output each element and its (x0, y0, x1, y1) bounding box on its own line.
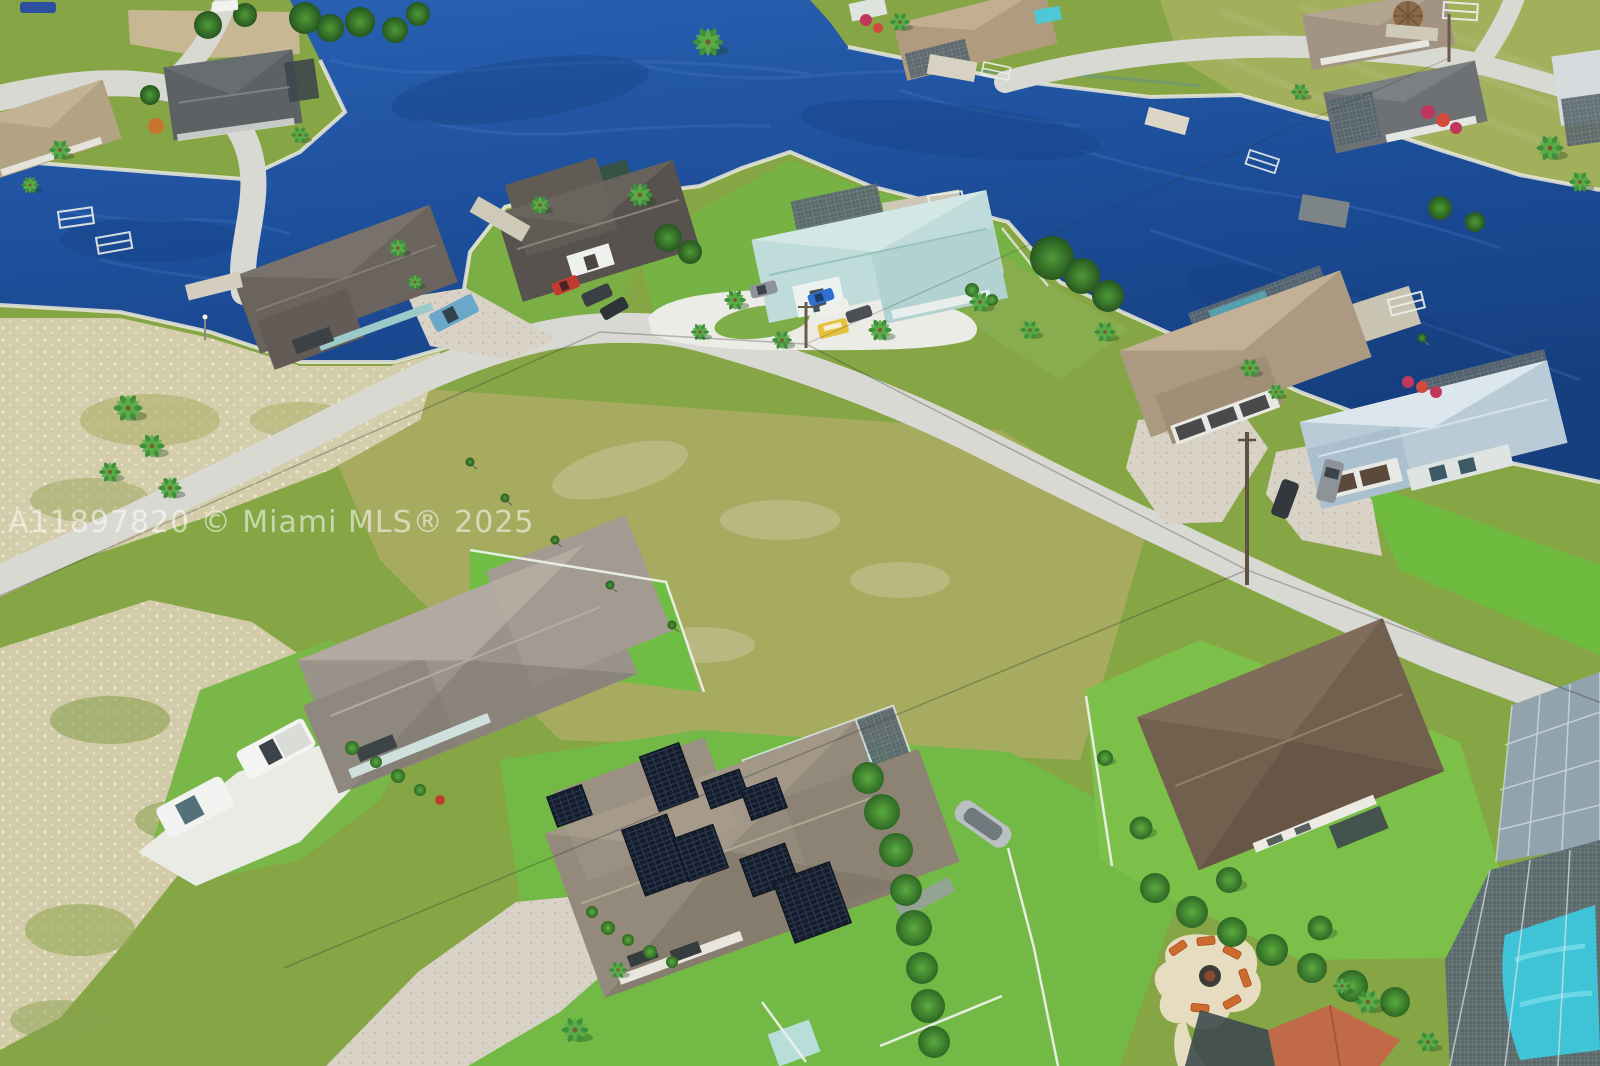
watermark-text: A11897820 © Miami MLS® 2025 (8, 505, 535, 540)
aerial-photo: A11897820 © Miami MLS® 2025 (0, 0, 1600, 1066)
aerial-scene: A11897820 © Miami MLS® 2025 (0, 0, 1600, 1066)
vehicle-blue-car (20, 2, 56, 13)
red-flowers (435, 795, 445, 805)
orange-tree (148, 118, 164, 134)
